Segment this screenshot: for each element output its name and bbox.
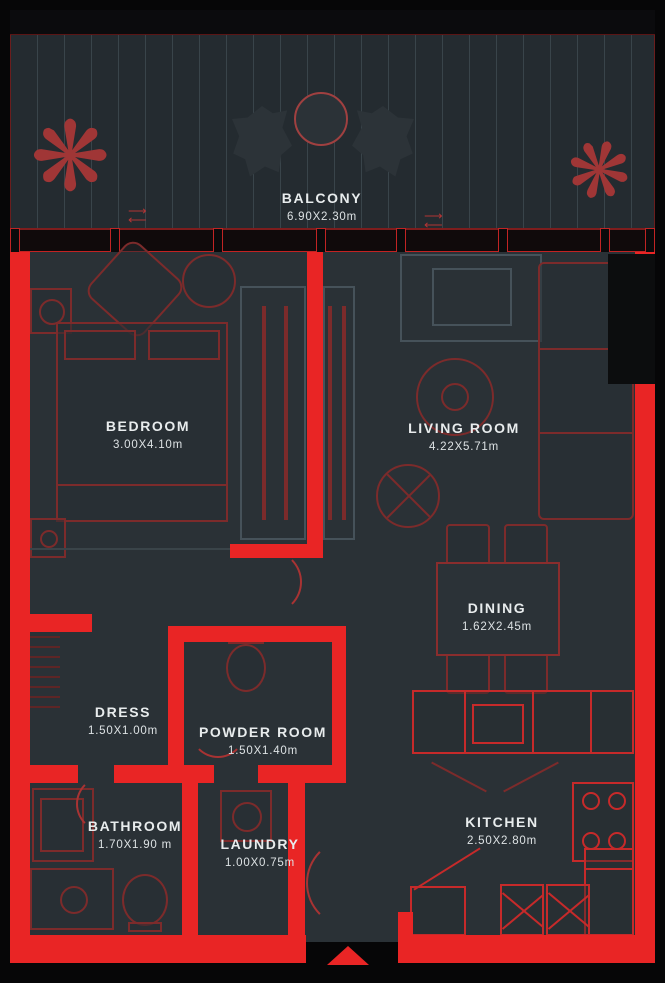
nightstand	[30, 518, 66, 558]
fridge	[584, 848, 634, 936]
window-mullion	[10, 228, 20, 254]
window-mullion	[396, 228, 406, 254]
room-label-powder-room: POWDER ROOM	[199, 724, 327, 740]
entry-jamb	[398, 912, 413, 963]
room-dims-powder-room: 1.50X1.40m	[199, 745, 327, 757]
room-label-laundry: LAUNDRY	[220, 836, 299, 852]
kitchen-counter-top	[412, 690, 634, 754]
room-label-living-room: LIVING ROOM	[408, 420, 520, 436]
dining-chair	[446, 652, 490, 694]
room-dims-kitchen: 2.50X2.80m	[465, 835, 538, 847]
room-dims-dress: 1.50X1.00m	[88, 725, 158, 737]
dining-chair	[446, 524, 490, 566]
wall-segment	[230, 544, 323, 558]
kitchen-sink-unit	[500, 884, 544, 936]
wall-segment	[398, 935, 655, 963]
room-dims-bedroom: 3.00X4.10m	[106, 439, 190, 451]
door-swing-arc	[238, 550, 302, 614]
wall-segment	[332, 626, 346, 778]
room-label-kitchen: KITCHEN	[465, 814, 538, 830]
side-table-round	[182, 254, 236, 308]
toilet	[122, 874, 168, 926]
pillow	[148, 330, 220, 360]
washing-machine	[220, 790, 272, 842]
pillow	[64, 330, 136, 360]
floor-plan: ❋ ❋ ⟶⟵ ⟶⟵ BALCONY 6.90X2.30m	[0, 0, 665, 983]
toilet-tank	[128, 922, 162, 932]
entry-jamb	[288, 912, 305, 963]
tv-unit	[400, 254, 542, 342]
wall-segment	[30, 765, 78, 783]
window-mullion	[600, 228, 610, 254]
room-label-dress: DRESS	[88, 704, 158, 720]
entry-door-arc	[306, 838, 396, 928]
wall-segment	[168, 626, 184, 778]
dining-chair	[504, 652, 548, 694]
shower	[30, 868, 114, 930]
sliding-door-arrows-icon: ⟶⟵	[424, 211, 442, 229]
window-mullion	[498, 228, 508, 254]
coffee-table	[376, 464, 440, 528]
kitchen-sink	[472, 704, 524, 744]
room-label-dining: DINING	[462, 600, 532, 616]
wardrobe-left	[240, 286, 306, 540]
window-mullion	[213, 228, 223, 254]
balcony-railing	[10, 10, 655, 35]
room-dims-bathroom: 1.70X1.90 m	[88, 839, 182, 851]
room-label-bathroom: BATHROOM	[88, 818, 182, 834]
room-dims-dining: 1.62X2.45m	[462, 621, 532, 633]
room-dims-living-room: 4.22X5.71m	[408, 441, 520, 453]
plant-icon: ❋	[30, 110, 110, 206]
room-label-bedroom: BEDROOM	[106, 418, 190, 434]
toilet	[226, 644, 266, 692]
dining-chair	[504, 524, 548, 566]
kitchen-cabinet	[410, 886, 466, 936]
wall-segment	[10, 935, 306, 963]
wall-segment	[10, 252, 30, 963]
kitchen-sink-unit	[546, 884, 590, 936]
window-mullion	[645, 228, 655, 254]
wall-dark-segment	[608, 254, 655, 384]
window-wall	[10, 228, 655, 254]
wall-segment	[30, 614, 92, 632]
room-label-balcony: BALCONY	[282, 190, 362, 206]
entry-arrow	[327, 946, 369, 965]
room-dims-laundry: 1.00X0.75m	[220, 857, 299, 869]
wall-segment	[114, 765, 214, 783]
wall-segment	[168, 626, 346, 642]
wall-segment	[182, 783, 198, 935]
planter-icon	[294, 92, 348, 146]
wall-segment	[307, 252, 323, 546]
window-mullion	[316, 228, 326, 254]
sliding-door-arrows-icon: ⟶⟵	[128, 206, 146, 224]
room-dims-balcony: 6.90X2.30m	[282, 211, 362, 223]
